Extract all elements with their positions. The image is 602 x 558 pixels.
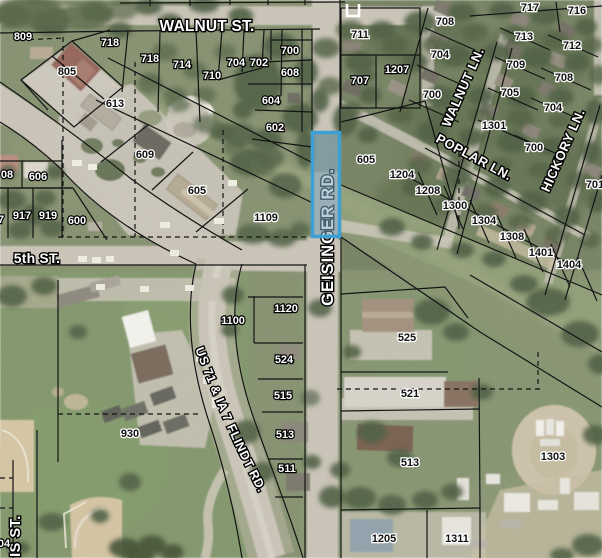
svg-text:704: 704	[431, 49, 450, 61]
svg-text:600: 600	[68, 215, 86, 227]
svg-text:1120: 1120	[274, 303, 298, 315]
svg-text:511: 511	[278, 463, 296, 475]
svg-text:702: 702	[250, 57, 268, 69]
svg-text:718: 718	[101, 37, 119, 49]
svg-text:7: 7	[0, 214, 4, 226]
svg-text:1311: 1311	[445, 533, 469, 545]
svg-text:1207: 1207	[385, 64, 409, 76]
svg-text:709: 709	[507, 59, 525, 71]
svg-text:716: 716	[568, 5, 586, 17]
svg-text:613: 613	[106, 98, 124, 110]
svg-text:704: 704	[227, 57, 246, 69]
svg-text:708: 708	[436, 16, 454, 28]
svg-text:700: 700	[281, 45, 299, 57]
svg-text:708: 708	[555, 72, 573, 84]
svg-text:707: 707	[351, 75, 369, 87]
svg-text:605: 605	[357, 154, 375, 166]
svg-text:704: 704	[544, 102, 563, 114]
svg-text:04: 04	[0, 538, 11, 550]
svg-text:1100: 1100	[221, 315, 245, 327]
svg-text:1204: 1204	[390, 169, 415, 181]
svg-text:705: 705	[501, 87, 519, 99]
svg-text:605: 605	[188, 185, 206, 197]
svg-text:809: 809	[14, 31, 32, 43]
svg-text:1308: 1308	[500, 231, 524, 243]
svg-text:524: 524	[275, 354, 294, 366]
svg-text:805: 805	[58, 66, 76, 78]
svg-text:IS ST.: IS ST.	[8, 515, 24, 557]
svg-text:714: 714	[173, 59, 192, 71]
svg-text:WALNUT ST.: WALNUT ST.	[160, 18, 255, 35]
svg-text:713: 713	[515, 31, 533, 43]
svg-text:930: 930	[121, 428, 139, 440]
svg-text:718: 718	[141, 53, 159, 65]
svg-text:08: 08	[1, 169, 13, 181]
svg-text:717: 717	[521, 2, 539, 14]
svg-text:521: 521	[401, 388, 419, 400]
svg-text:1205: 1205	[372, 533, 396, 545]
svg-text:711: 711	[351, 29, 369, 41]
svg-text:1300: 1300	[443, 200, 467, 212]
svg-text:1301: 1301	[482, 120, 506, 132]
svg-text:1404: 1404	[557, 259, 582, 271]
svg-text:712: 712	[563, 40, 581, 52]
svg-text:513: 513	[276, 429, 294, 441]
svg-text:515: 515	[274, 390, 292, 402]
svg-text:1208: 1208	[416, 185, 440, 197]
svg-text:513: 513	[401, 457, 419, 469]
svg-text:1401: 1401	[529, 247, 553, 259]
svg-text:1304: 1304	[472, 215, 497, 227]
svg-text:919: 919	[39, 210, 57, 222]
svg-text:5th ST.: 5th ST.	[14, 250, 61, 266]
svg-text:609: 609	[136, 149, 154, 161]
svg-text:525: 525	[398, 332, 416, 344]
svg-text:700: 700	[423, 89, 441, 101]
svg-text:604: 604	[262, 95, 281, 107]
svg-text:602: 602	[266, 122, 284, 134]
svg-text:700: 700	[525, 142, 543, 154]
svg-text:917: 917	[13, 210, 31, 222]
svg-text:608: 608	[281, 67, 299, 79]
svg-text:710: 710	[203, 70, 221, 82]
svg-text:1303: 1303	[541, 451, 565, 463]
svg-text:701: 701	[586, 179, 602, 191]
svg-text:606: 606	[29, 171, 47, 183]
svg-text:1109: 1109	[254, 212, 278, 224]
